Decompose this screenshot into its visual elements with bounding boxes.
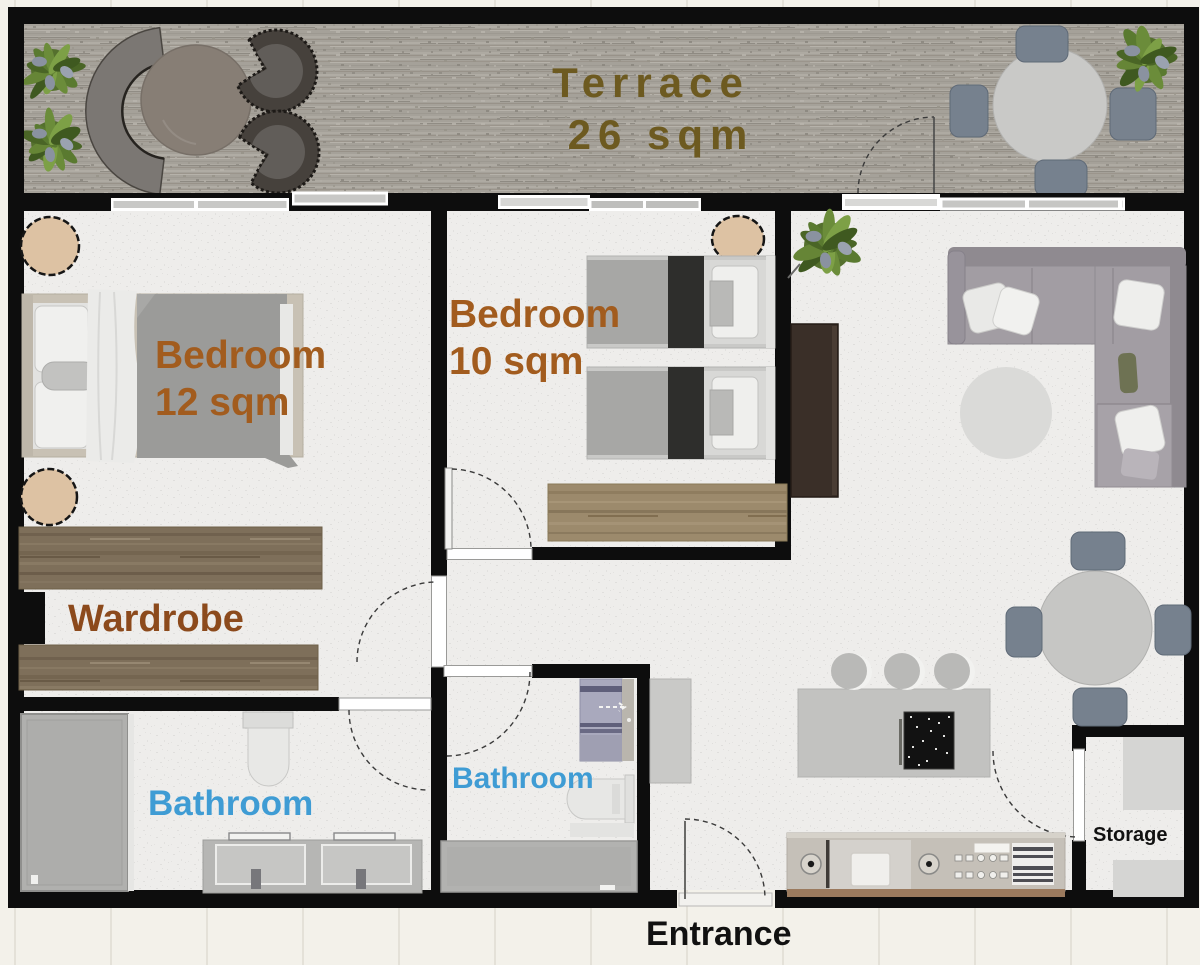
svg-text:Wardrobe: Wardrobe <box>68 598 244 640</box>
svg-text:Storage: Storage <box>1093 824 1167 846</box>
svg-text:26 sqm: 26 sqm <box>568 111 755 158</box>
svg-text:10 sqm: 10 sqm <box>449 340 583 383</box>
svg-text:Bedroom: Bedroom <box>449 293 620 336</box>
svg-text:Bedroom: Bedroom <box>155 334 326 377</box>
svg-text:Terrace: Terrace <box>552 59 750 106</box>
svg-text:12 sqm: 12 sqm <box>155 381 289 424</box>
svg-text:Entrance: Entrance <box>646 915 792 953</box>
svg-text:Bathroom: Bathroom <box>148 784 313 823</box>
svg-text:Bathroom: Bathroom <box>452 762 594 795</box>
